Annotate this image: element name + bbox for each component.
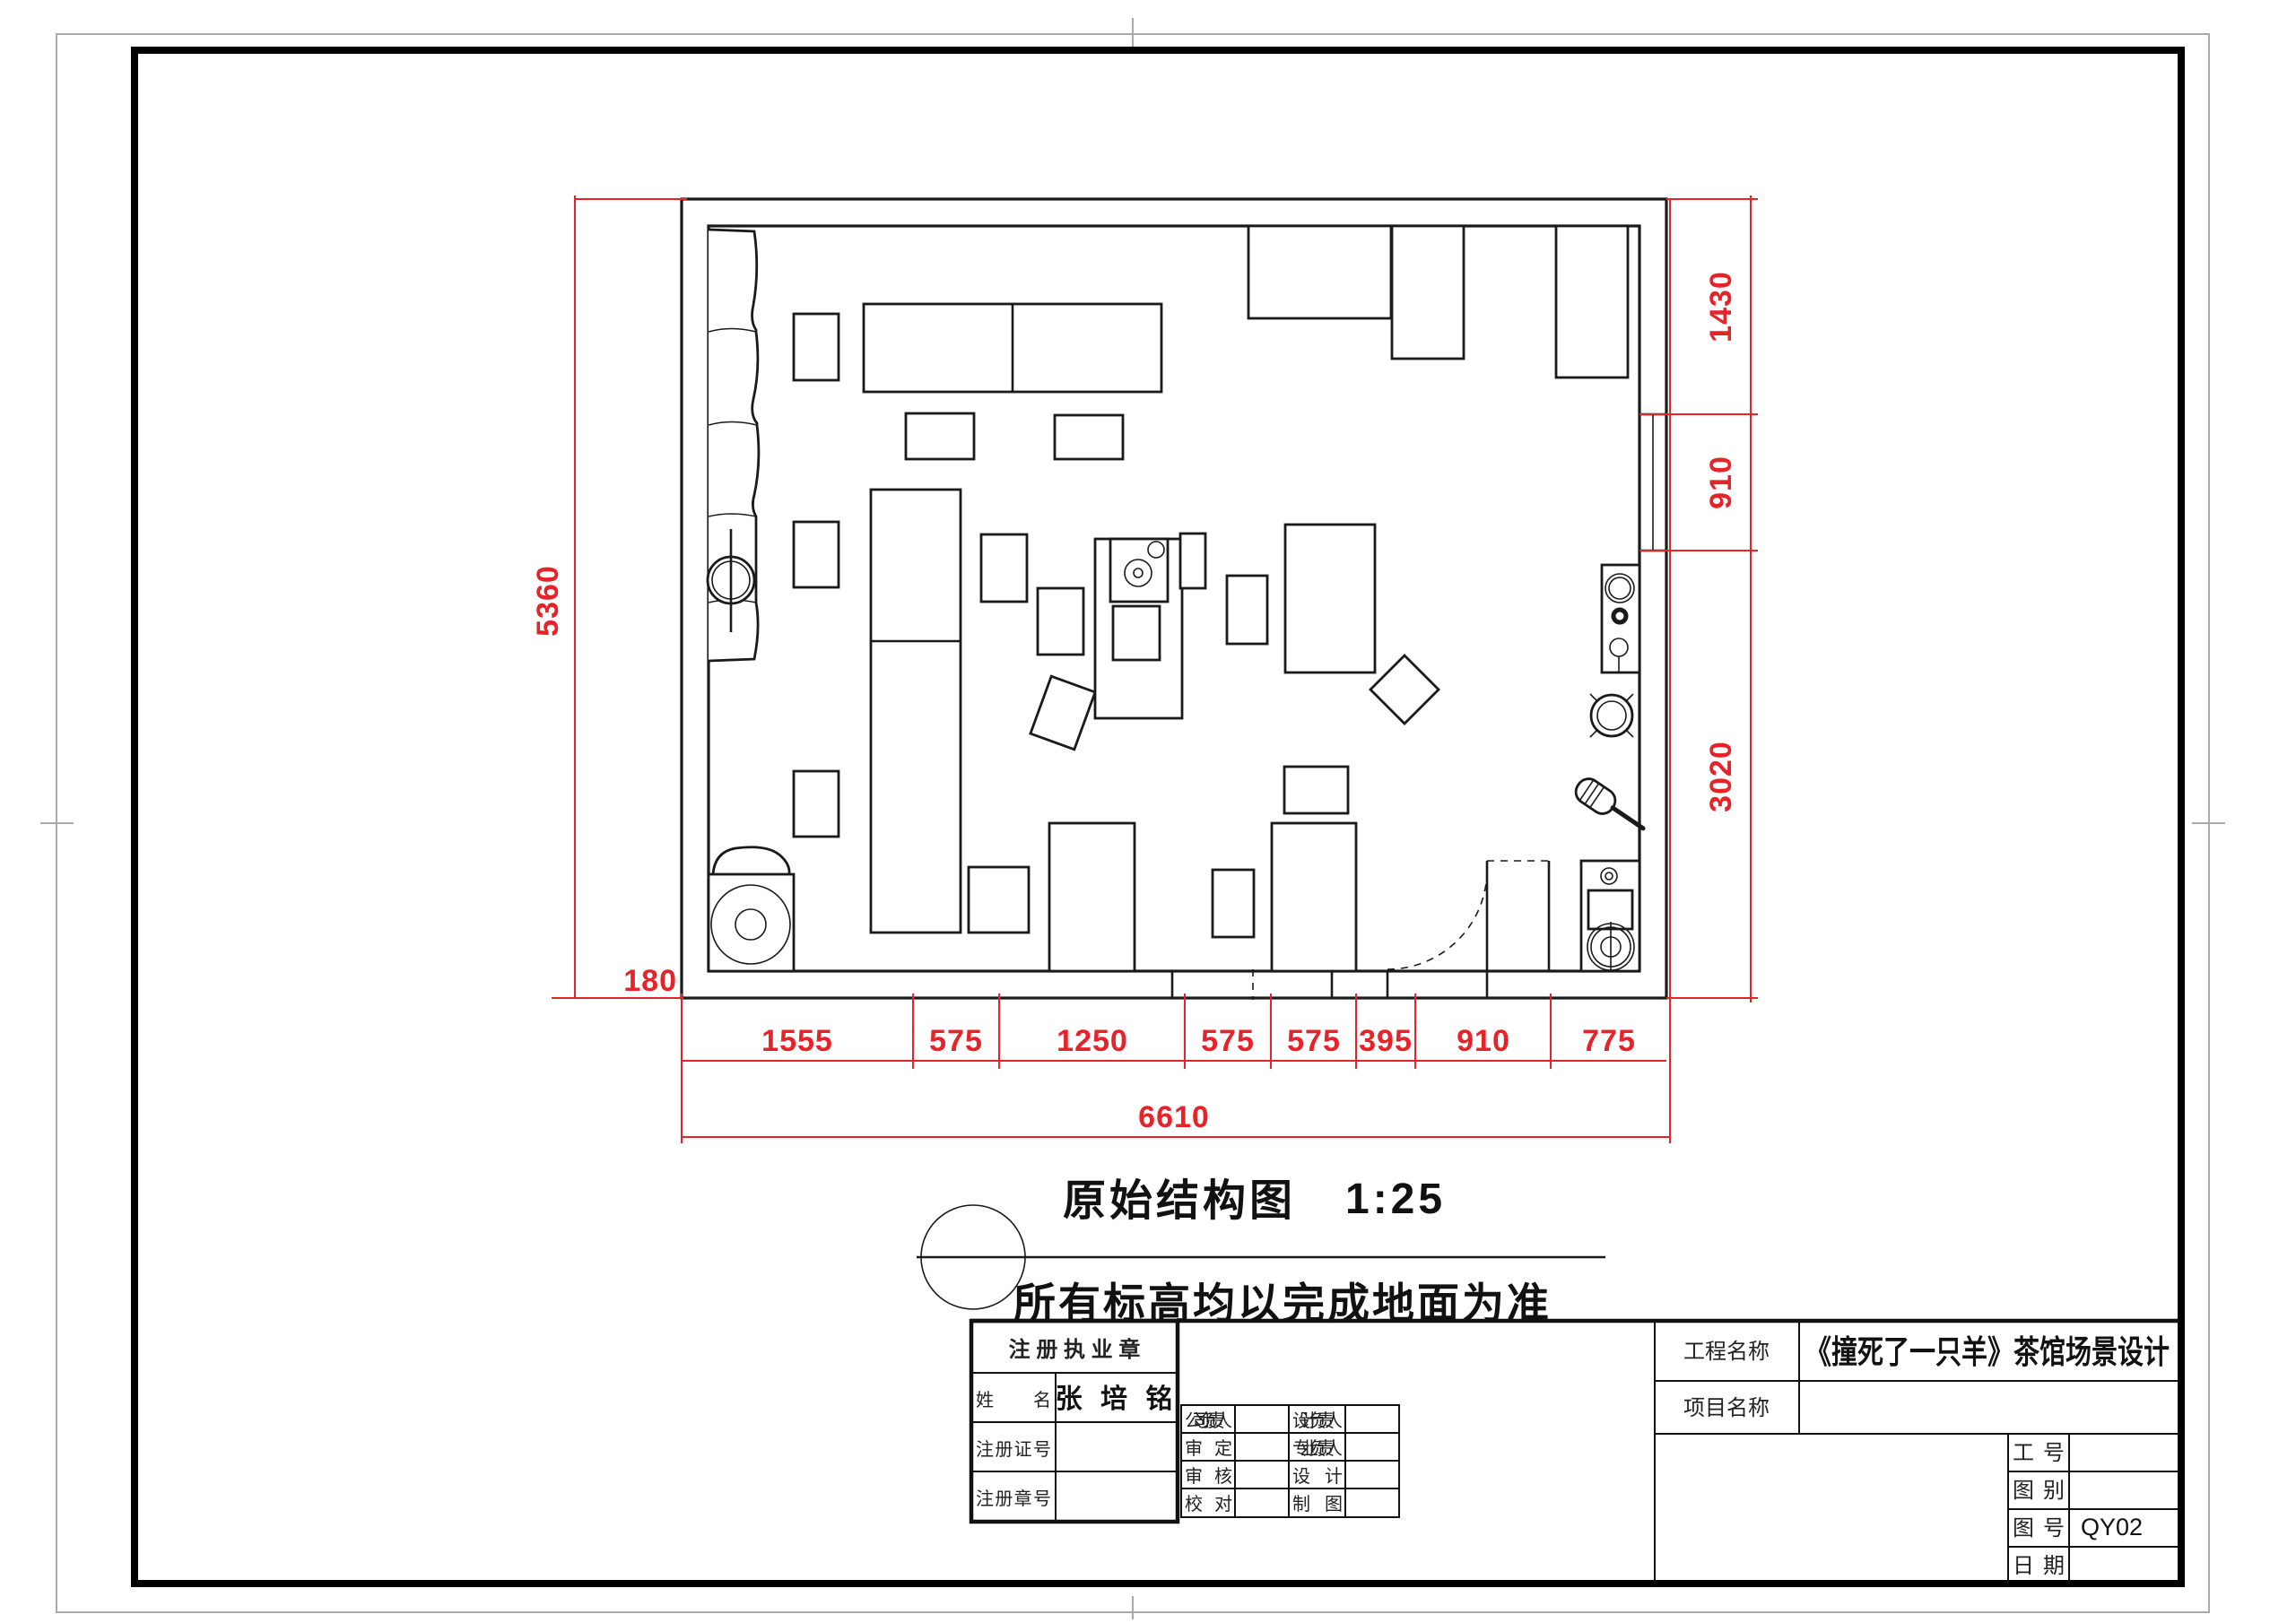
tea-table-seat (1113, 606, 1160, 660)
kettle-body (1571, 775, 1620, 819)
stool (794, 314, 839, 380)
cad-canvas: 5360 180 1555 575 1250 575 575 395 910 7… (0, 0, 2296, 1623)
stool (794, 771, 839, 837)
stove-dome (713, 847, 789, 874)
drawing-title: 原始结构图 (1063, 1177, 1296, 1225)
seal-header: 注 册 执 业 章 (1009, 1337, 1141, 1362)
title-block: 注 册 执 业 章 姓 名 张 培 铭 注 册 证 号 注 册 章 号 公司负责… (971, 1321, 2179, 1584)
project-name-value: 《撞死了一只羊》茶馆场景设计 (1805, 1333, 2170, 1370)
approval-label: 专业负责人 (1292, 1438, 1343, 1459)
approval-label: 审 核 (1185, 1466, 1232, 1487)
side-stool (1180, 534, 1205, 588)
wok-lug (1590, 731, 1596, 737)
dim-label-180: 180 (623, 964, 677, 998)
approval-label: 审 定 (1185, 1438, 1232, 1459)
stool (794, 522, 839, 587)
drawing-title-group: 原始结构图 1:25 所有标高均以完成地面为准 (917, 1176, 1605, 1327)
tilted-stool (1031, 676, 1095, 750)
dim-label: 575 (1287, 1024, 1341, 1058)
stool (906, 413, 974, 459)
approval-label: 校 对 (1185, 1494, 1232, 1515)
dim-label: 395 (1359, 1024, 1413, 1058)
approval-label: 设 计 (1292, 1466, 1343, 1487)
wok-lug (1590, 694, 1596, 700)
project-label-2: 项目名称 (1683, 1396, 1770, 1420)
dim-label-1430: 1430 (1704, 271, 1738, 343)
drawing-sheet: 5360 180 1555 575 1250 575 575 395 910 7… (0, 0, 2296, 1623)
corner-cabinet (1556, 226, 1628, 378)
diamond-stool (1370, 655, 1439, 724)
table (1285, 525, 1375, 673)
dim-label: 575 (1201, 1024, 1255, 1058)
dim-label-910: 910 (1704, 456, 1738, 509)
bench (1272, 823, 1356, 971)
wok-lug (1627, 731, 1633, 737)
dim-label: 575 (929, 1024, 983, 1058)
sheet-frame (40, 18, 2225, 1619)
info-label: 日 期 (2013, 1554, 2065, 1578)
approval-label: 制 图 (1292, 1494, 1343, 1515)
stool (1213, 870, 1254, 937)
furniture (708, 226, 1650, 971)
stool (969, 867, 1029, 933)
project-label: 工程名称 (1683, 1340, 1770, 1364)
dim-label: 1250 (1057, 1024, 1128, 1058)
stool (1284, 767, 1348, 813)
designer-name: 张 培 铭 (1056, 1384, 1178, 1414)
bench (1049, 823, 1135, 971)
wok-lug (1627, 694, 1633, 700)
dim-label: 910 (1457, 1024, 1510, 1058)
stool (1038, 588, 1083, 655)
info-label: 工 号 (2013, 1441, 2065, 1465)
stool (981, 534, 1027, 602)
sheet-number-value: QY02 (2081, 1514, 2143, 1541)
dim-label-6610: 6610 (1138, 1100, 1210, 1134)
tall-table (871, 490, 961, 933)
drawing-scale: 1:25 (1345, 1176, 1446, 1223)
dim-label: 775 (1582, 1024, 1636, 1058)
dim-label: 1555 (761, 1024, 833, 1058)
dim-label-3020: 3020 (1704, 741, 1738, 812)
tea-table-tray (1110, 539, 1168, 602)
cabinet (1392, 226, 1464, 359)
info-label: 图 别 (2013, 1479, 2065, 1503)
seal-label-name: 姓 名 (976, 1390, 1051, 1410)
door-swing-arc (1387, 872, 1487, 969)
approval-label: 公司负责人 (1185, 1410, 1232, 1431)
cabinet (1248, 226, 1391, 318)
stove-body (709, 874, 794, 971)
stool (1227, 576, 1267, 644)
approval-label: 设计负责人 (1292, 1410, 1343, 1431)
stool (1055, 415, 1123, 459)
door-side-cabinet (1487, 861, 1549, 971)
seal-label-stamp: 注 册 章 号 (976, 1488, 1051, 1509)
seal-label-cert: 注 册 证 号 (976, 1439, 1051, 1460)
info-label: 图 号 (2013, 1516, 2065, 1541)
dim-label-5360: 5360 (531, 565, 565, 637)
